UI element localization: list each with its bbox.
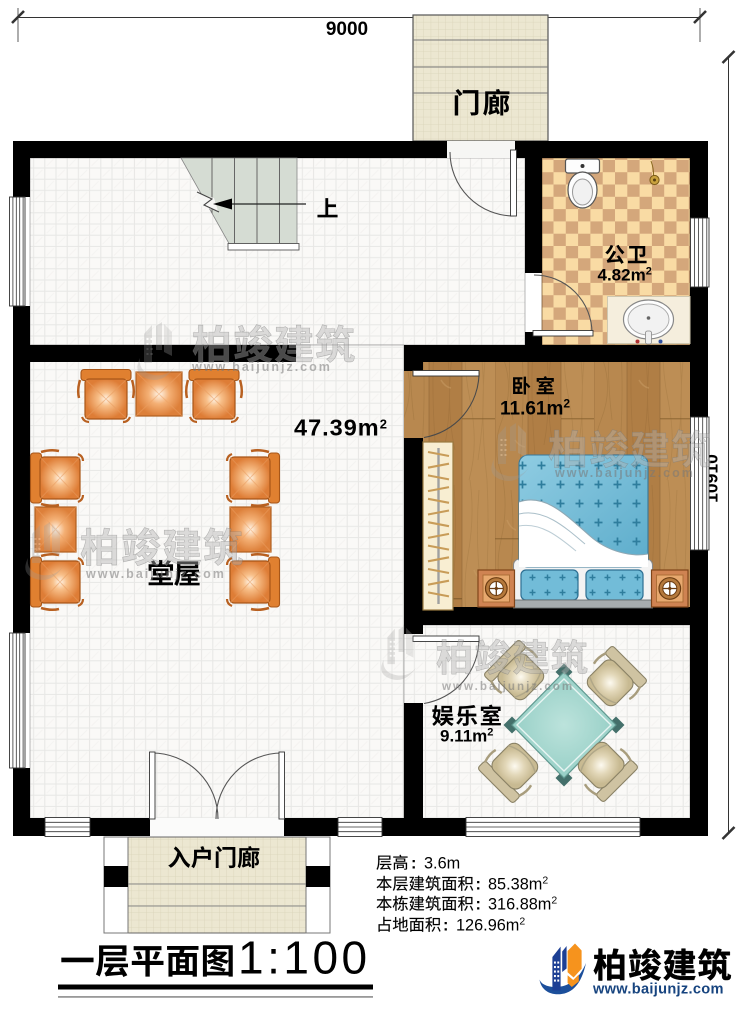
svg-text:85.38m2: 85.38m2 (488, 875, 548, 894)
svg-text:9.11m2: 9.11m2 (440, 727, 493, 746)
svg-text:316.88m2: 316.88m2 (488, 895, 557, 914)
svg-text:11.61m2: 11.61m2 (500, 397, 570, 420)
svg-text::: : (476, 896, 481, 914)
svg-text:47.39m2: 47.39m2 (294, 415, 388, 441)
svg-text:www.baijunjz.com: www.baijunjz.com (191, 360, 332, 374)
svg-text:1:100: 1:100 (238, 932, 371, 984)
svg-text:9000: 9000 (326, 19, 368, 40)
svg-text::: : (476, 876, 481, 894)
svg-text:126.96m2: 126.96m2 (456, 916, 525, 935)
svg-text::: : (443, 917, 448, 935)
svg-text:www.baijunjz.com: www.baijunjz.com (592, 982, 724, 998)
svg-text:3.6m: 3.6m (424, 855, 460, 873)
svg-text:www.baijunjz.com: www.baijunjz.com (554, 466, 695, 480)
svg-text:4.82m2: 4.82m2 (598, 266, 652, 285)
svg-text:www.baijunjz.com: www.baijunjz.com (85, 567, 226, 581)
svg-text:www.baijunjz.com: www.baijunjz.com (441, 680, 574, 693)
svg-text::: : (411, 855, 416, 873)
